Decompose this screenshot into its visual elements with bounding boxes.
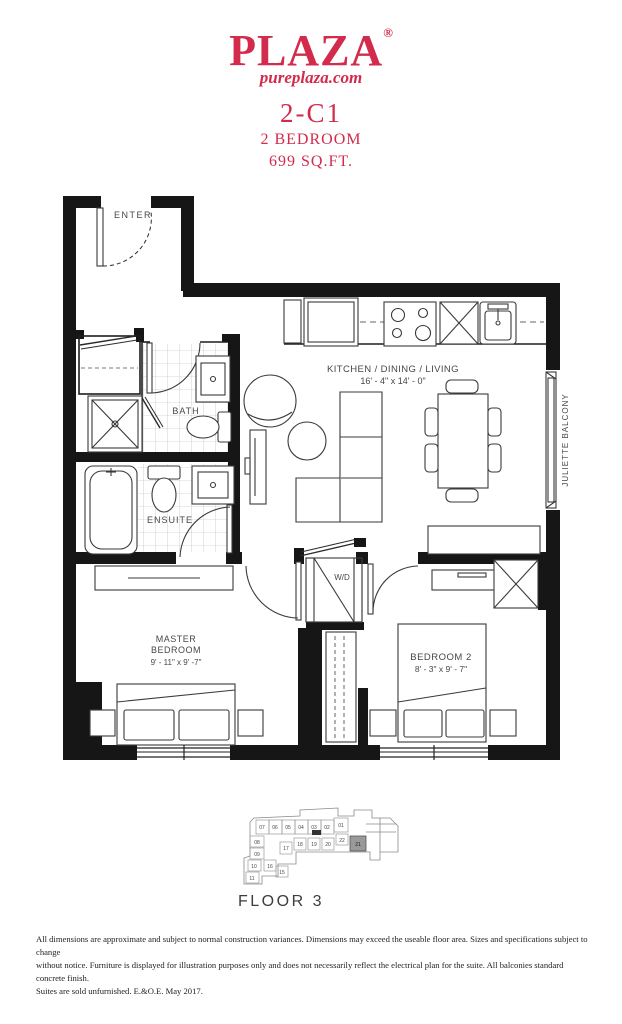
unit-08: 08 [254, 840, 260, 846]
master-label-2: BEDROOM [151, 645, 201, 655]
stove [384, 302, 436, 346]
disclaimer-line-1: All dimensions are approximate and subje… [36, 933, 592, 959]
bedroom-2: BEDROOM 2 8' - 3" x 9' - 7" [368, 560, 538, 760]
entry-closet [79, 336, 140, 394]
bedroom2-door-swing [373, 566, 418, 612]
hall-closet [326, 632, 356, 742]
juliette-balcony: JULIETTE BALCONY [546, 372, 570, 508]
unit-16: 16 [267, 864, 273, 870]
armchair [244, 375, 296, 427]
laundry-door [300, 543, 356, 556]
bedroom2-closet [494, 560, 538, 608]
unit-19: 19 [311, 842, 317, 848]
bathroom: BATH [88, 342, 231, 452]
disclaimer: All dimensions are approximate and subje… [36, 933, 592, 997]
unit-06: 06 [272, 825, 278, 831]
bedroom2-dims: 8' - 3" x 9' - 7" [415, 664, 467, 674]
fridge [304, 298, 358, 346]
master-nightstand-right [238, 710, 263, 736]
ensuite-label: ENSUITE [147, 515, 193, 525]
kitchen-sink [480, 302, 516, 344]
bedroom2-door-leaf [368, 564, 373, 614]
wd-label: W/D [334, 573, 350, 582]
bathtub [85, 466, 137, 554]
unit-21-highlighted: 21 [355, 842, 361, 848]
disclaimer-line-2: without notice. Furniture is displayed f… [36, 959, 592, 985]
ensuite-door-leaf [227, 505, 232, 553]
unit-15: 15 [279, 870, 285, 876]
entry-door-swing [103, 212, 151, 266]
unit-04: 04 [298, 825, 304, 831]
master-dims: 9' - 11" x 9' -7" [151, 658, 202, 667]
kitchen-cabinet [284, 300, 301, 343]
unit-07: 07 [259, 825, 265, 831]
bath-sink [196, 356, 230, 402]
master-label-1: MASTER [156, 634, 197, 644]
unit-02: 02 [324, 825, 330, 831]
unit-09: 09 [254, 852, 260, 858]
credenza [428, 526, 540, 554]
unit-18: 18 [297, 842, 303, 848]
unit-05: 05 [285, 825, 291, 831]
unit-22: 22 [339, 838, 345, 844]
master-door-swing [246, 566, 298, 618]
master-door-leaf [296, 562, 301, 620]
kitchen: KITCHEN / DINING / LIVING 16' - 4" x 14'… [284, 298, 546, 386]
laundry-closet: W/D [300, 538, 366, 622]
bath-door-leaf [147, 343, 152, 393]
unit-20: 20 [325, 842, 331, 848]
master-nightstand-left [90, 710, 115, 736]
bath-label: BATH [172, 406, 199, 416]
dining-set [425, 380, 501, 502]
floor-plan-drawing: ENTER [0, 0, 622, 1024]
kitchen-dims: 16' - 4" x 14' - 0" [360, 376, 425, 386]
disclaimer-line-3: Suites are sold unfurnished. E.&O.E. May… [36, 985, 592, 998]
juliette-label: JULIETTE BALCONY [561, 393, 570, 486]
master-bed [117, 684, 235, 745]
unit-11: 11 [249, 876, 254, 882]
dishwasher [440, 302, 478, 344]
entry-door-leaf [97, 208, 103, 266]
floor-label: FLOOR 3 [238, 893, 324, 911]
unit-03: 03 [311, 825, 317, 831]
unit-01: 01 [338, 823, 344, 829]
sectional-sofa [296, 392, 382, 522]
kitchen-label: KITCHEN / DINING / LIVING [327, 364, 459, 375]
bedroom2-window [380, 745, 488, 760]
bedroom2-nightstand-left [370, 710, 396, 736]
enter-label: ENTER [114, 210, 152, 220]
bedroom2-label: BEDROOM 2 [410, 652, 472, 663]
key-plan: 07 06 05 04 03 02 01 22 20 19 18 17 08 0… [244, 808, 398, 884]
coffee-table [288, 422, 326, 460]
bedroom2-bed [398, 624, 486, 742]
bedroom2-nightstand-right [490, 710, 516, 736]
living-room [244, 375, 540, 554]
master-bedroom: MASTER BEDROOM 9' - 11" x 9' -7" [90, 562, 301, 760]
ensuite-sink [192, 466, 234, 504]
building-outline [244, 808, 398, 884]
entry-area: ENTER [97, 208, 152, 266]
unit-10: 10 [251, 864, 257, 870]
master-window [137, 745, 230, 760]
ensuite: ENSUITE [85, 464, 234, 557]
building-detail-lines [366, 818, 396, 852]
unit-17: 17 [283, 846, 289, 852]
tv-console [245, 430, 266, 504]
brochure-page: PLAZA® pureplaza.com 2-C1 2 BEDROOM 699 … [0, 0, 622, 1024]
